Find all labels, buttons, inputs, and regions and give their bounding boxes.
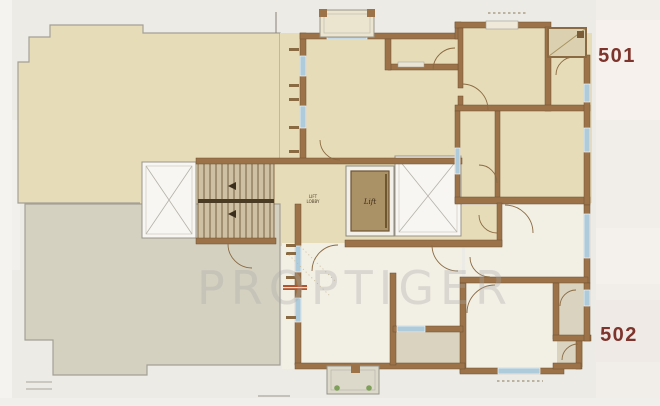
lobby-label-line2: LOBBY — [307, 199, 321, 204]
balcony-top — [319, 9, 375, 37]
lift-label: Lift — [363, 198, 376, 206]
unit-501-label: 501 — [598, 45, 636, 67]
floor-plan-page: PROPTIGER LIFT LOBBY Lift 501 502 — [0, 0, 660, 406]
staircase — [198, 163, 274, 240]
unit-502-label: 502 — [600, 324, 638, 346]
balcony-bottom — [327, 363, 379, 394]
plant-icon — [366, 385, 372, 391]
plant-icon — [334, 385, 340, 391]
floor-plan-drawing: PROPTIGER LIFT LOBBY Lift 501 502 — [0, 0, 660, 406]
toilet-room — [462, 205, 498, 243]
toilet-room — [557, 283, 587, 337]
stair-landing — [198, 199, 274, 203]
utility-room — [395, 331, 463, 368]
duct-shaft-right — [395, 156, 461, 236]
duct-shaft-left — [142, 162, 196, 238]
watermark: PROPTIGER — [197, 261, 513, 315]
duct-box-topright — [548, 28, 586, 57]
